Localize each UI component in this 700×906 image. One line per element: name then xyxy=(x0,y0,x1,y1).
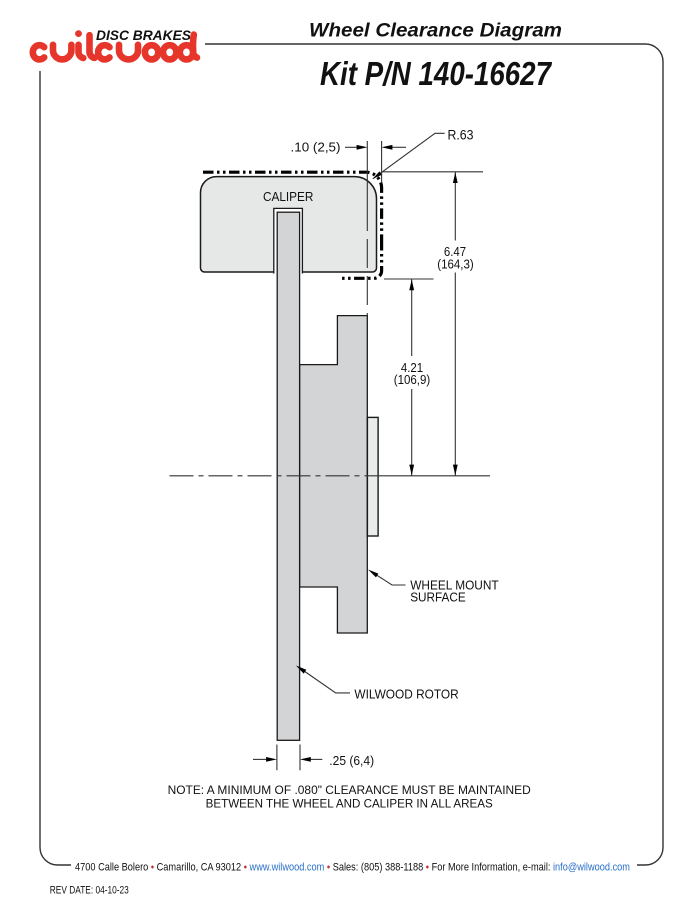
svg-text:R.63: R.63 xyxy=(448,127,474,143)
svg-text:.10 (2,5): .10 (2,5) xyxy=(291,139,341,154)
svg-text:NOTE: A MINIMUM OF .080" CLEAR: NOTE: A MINIMUM OF .080" CLEARANCE MUST … xyxy=(168,785,531,797)
svg-text:SURFACE: SURFACE xyxy=(410,591,466,605)
svg-text:Wheel Clearance Diagram: Wheel Clearance Diagram xyxy=(309,20,562,42)
svg-text:.25 (6,4): .25 (6,4) xyxy=(329,753,374,768)
svg-text:(164,3): (164,3) xyxy=(437,257,474,271)
svg-text:4700 Calle Bolero • Camarillo,: 4700 Calle Bolero • Camarillo, CA 93012 … xyxy=(75,861,630,873)
svg-text:CALIPER: CALIPER xyxy=(263,189,314,204)
svg-text:Kit P/N 140-16627: Kit P/N 140-16627 xyxy=(320,55,552,92)
svg-text:BETWEEN THE WHEEL AND CALIPER: BETWEEN THE WHEEL AND CALIPER IN ALL ARE… xyxy=(206,799,493,811)
svg-text:DISC BRAKES: DISC BRAKES xyxy=(96,28,191,43)
svg-text:(106,9): (106,9) xyxy=(394,373,431,387)
svg-text:WILWOOD ROTOR: WILWOOD ROTOR xyxy=(354,688,458,702)
svg-text:REV DATE: 04-10-23: REV DATE: 04-10-23 xyxy=(50,885,129,897)
